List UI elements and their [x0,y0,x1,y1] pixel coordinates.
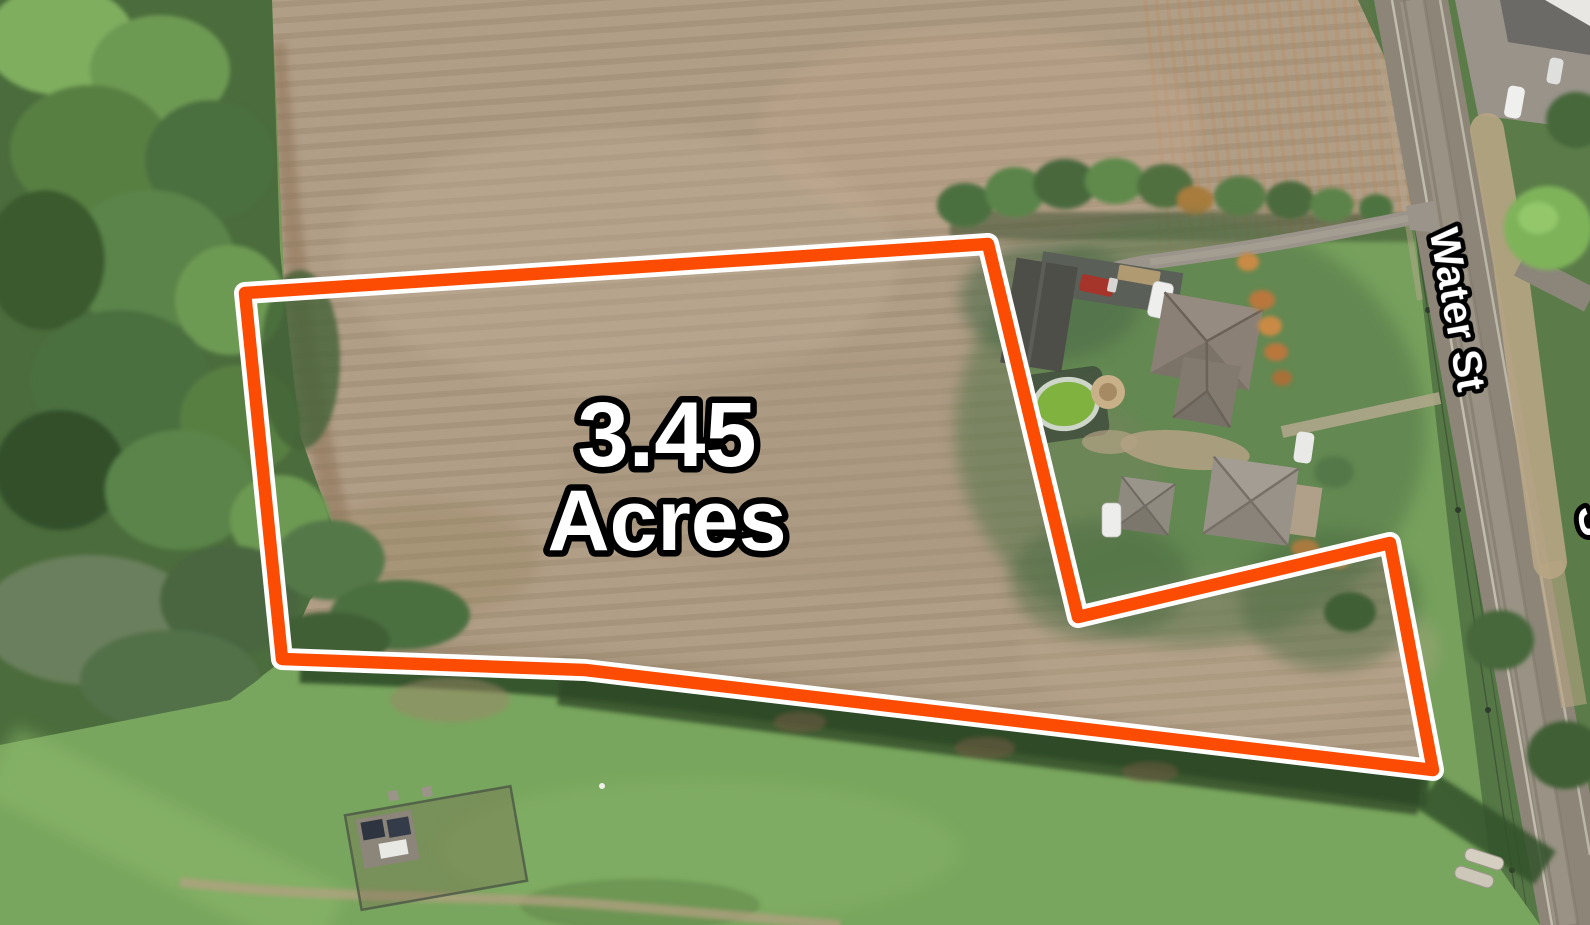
white-car [1102,503,1121,537]
acreage-unit: Acres [547,473,786,569]
bush [1314,456,1354,488]
stone-patio-center [1099,383,1117,401]
acreage-label: 3.45 Acres [547,384,786,569]
acreage-value: 3.45 [577,384,756,486]
solar-shed [356,810,420,869]
fence-post [421,786,433,798]
tree [1466,610,1534,670]
aerial-map: 3.45 Acres Water St S [0,0,1590,925]
dirt-patch [1082,430,1138,454]
basemap [0,0,1590,925]
tree-highlight [1518,202,1558,234]
garden-shed [1115,476,1176,535]
white-speck [599,783,605,789]
bush [1324,592,1376,632]
fence-post [387,790,399,802]
